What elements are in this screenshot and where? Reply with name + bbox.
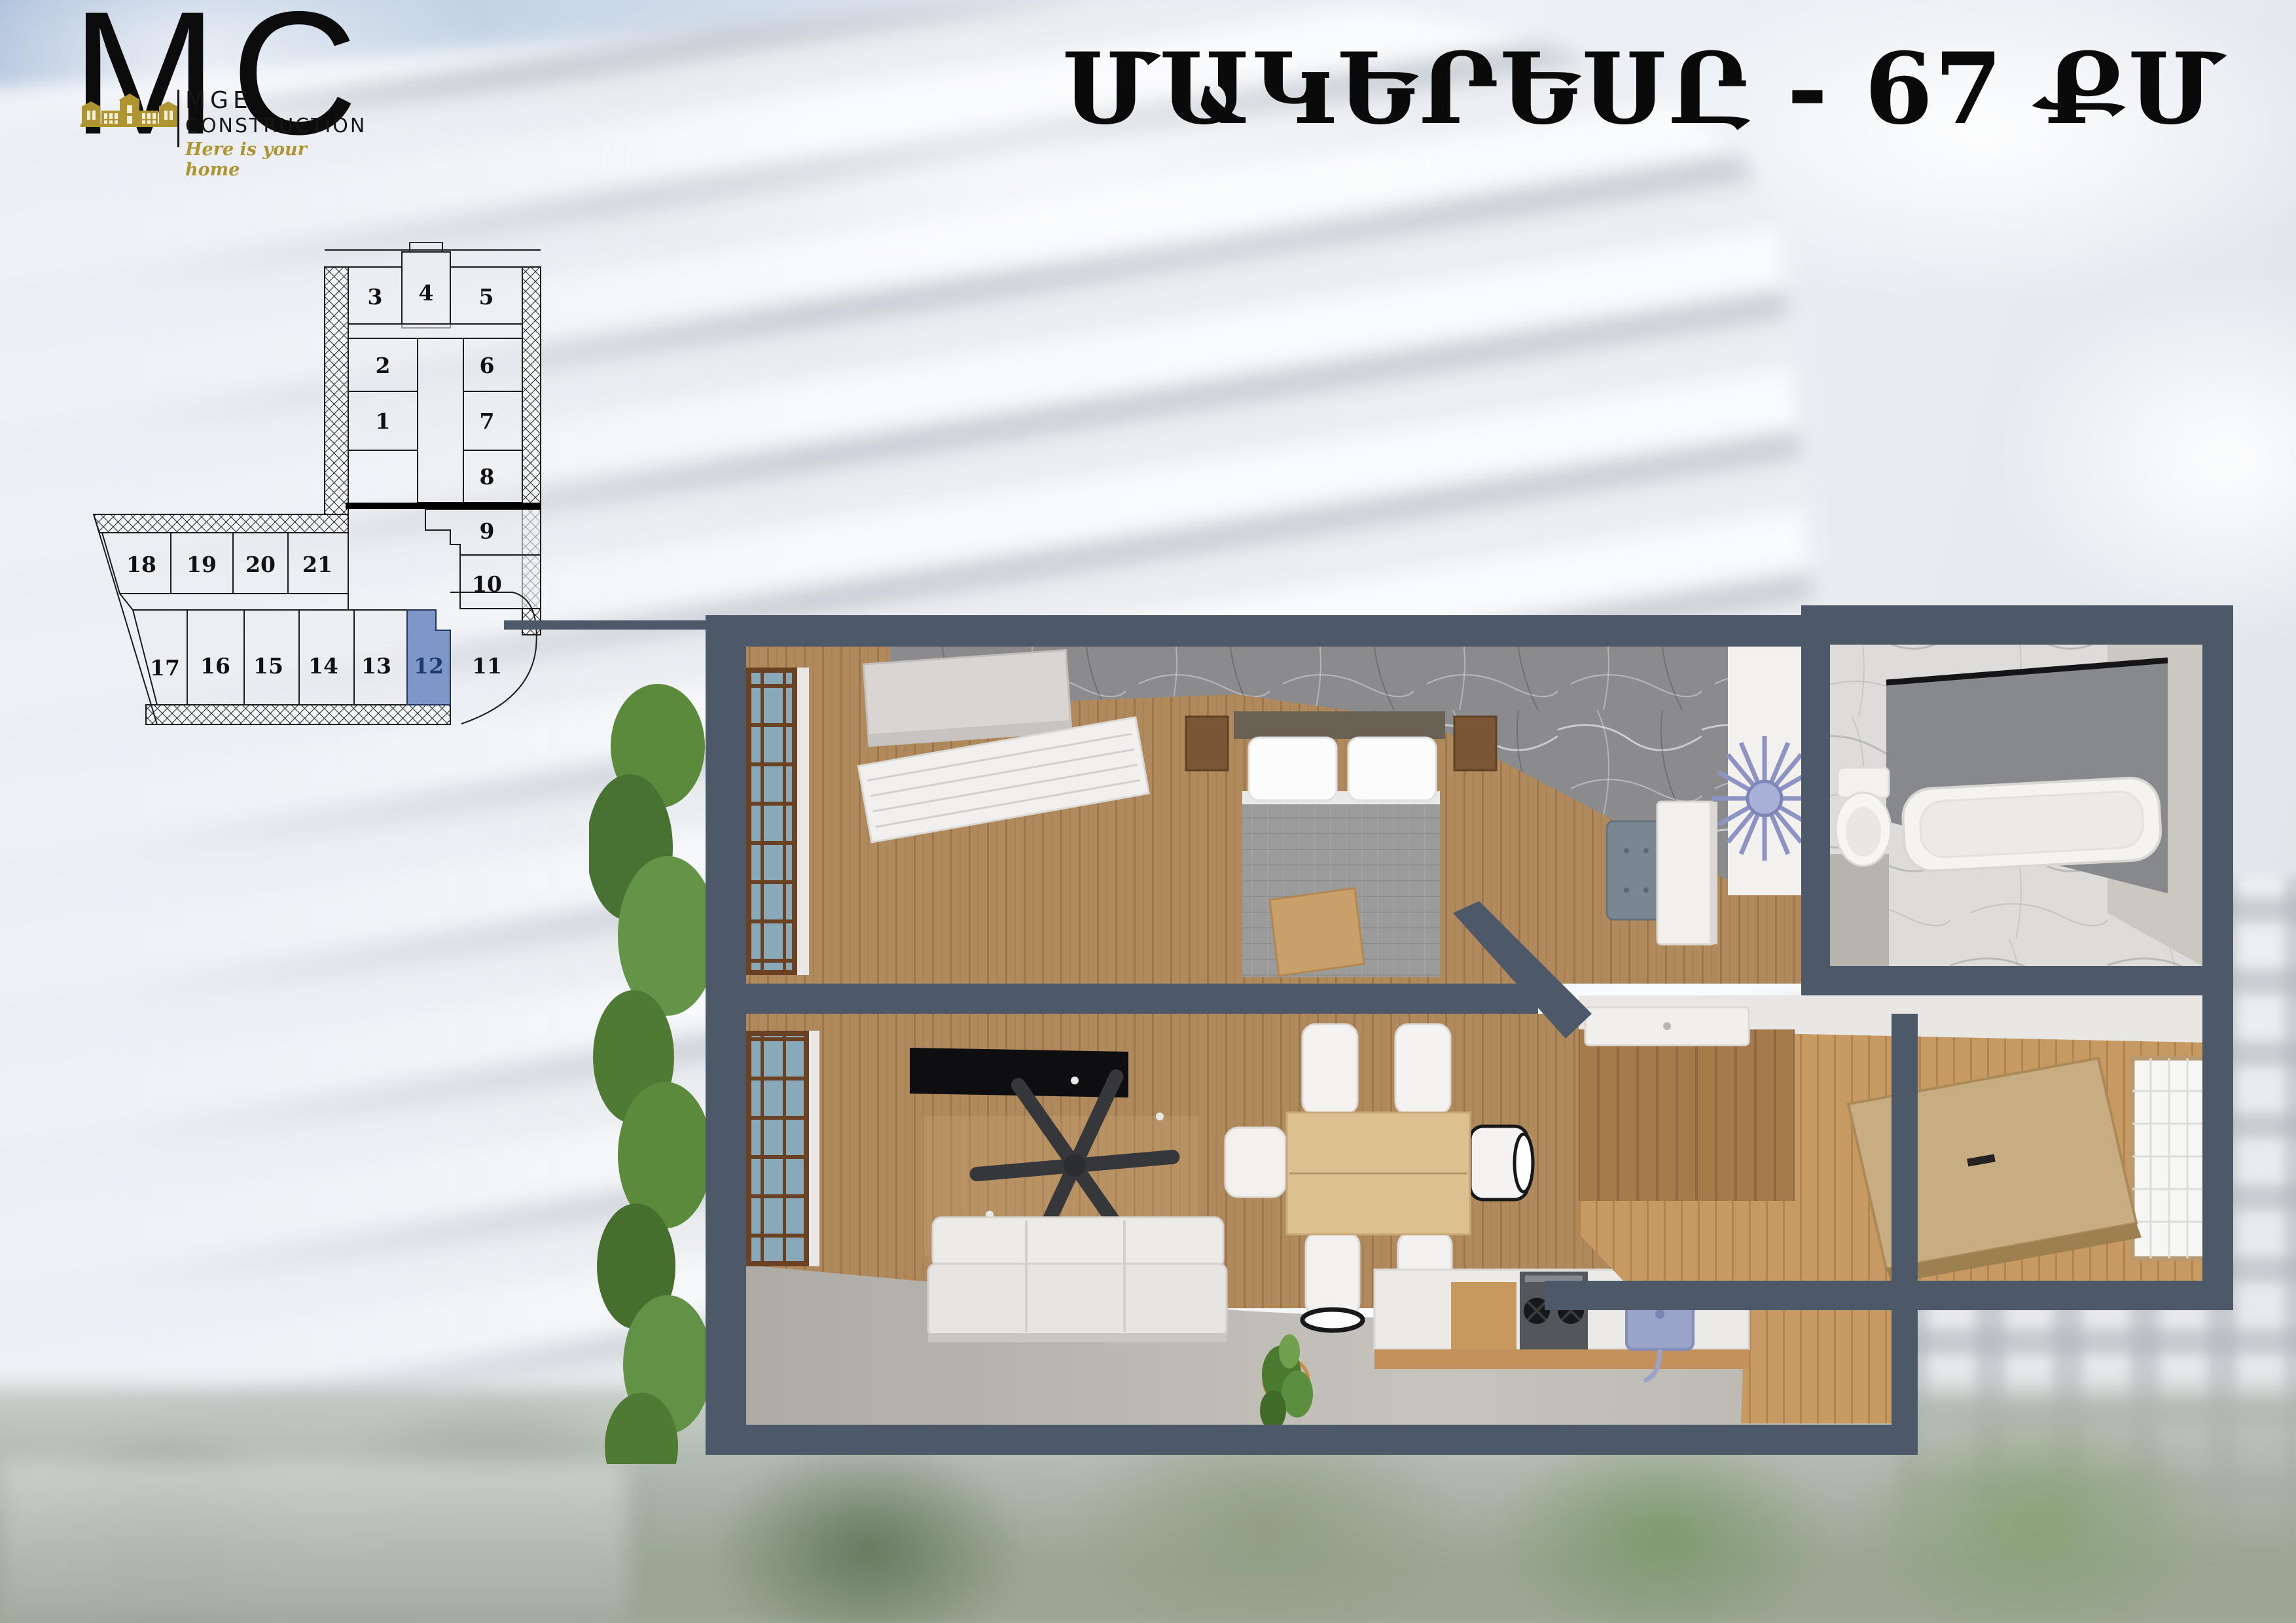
bedroom-window-glass: [751, 673, 792, 970]
svg-text:5: 5: [479, 284, 494, 310]
dining-chair: [1302, 1024, 1357, 1115]
wall-left: [706, 615, 746, 1455]
svg-text:4: 4: [419, 280, 434, 306]
nightstand: [1454, 717, 1496, 770]
dining-chair: [1302, 1232, 1363, 1330]
plan-exterior-trees: [589, 684, 717, 1464]
frosted-glass-door: [2132, 1058, 2206, 1258]
schematic-wall-hatched: [94, 514, 348, 533]
schematic-corridor: [418, 338, 463, 503]
svg-text:3: 3: [368, 284, 383, 310]
vanity-dresser: [1657, 802, 1715, 944]
wall-top: [706, 615, 1801, 647]
window-sill: [797, 668, 809, 975]
wall-living-right: [1892, 1014, 1918, 1425]
svg-text:8: 8: [480, 464, 495, 490]
svg-text:18: 18: [126, 552, 156, 577]
svg-text:13: 13: [361, 653, 391, 679]
schematic-slab-line: [346, 503, 541, 509]
bathroom-wall-bottom: [1801, 966, 2233, 995]
logo-company-name-line1: MGE: [185, 87, 253, 114]
brochure-page: M C: [0, 0, 2296, 1623]
toilet: [1836, 768, 1891, 866]
svg-text:9: 9: [480, 518, 495, 544]
living-window-glass: [751, 1036, 804, 1261]
dining-chair: [1395, 1024, 1450, 1115]
company-logo: M C: [62, 10, 403, 193]
bathroom-wall-right: [2202, 605, 2233, 995]
dining-chair: [1470, 1126, 1533, 1200]
bathroom-tile-area: [1830, 854, 1889, 966]
bathtub: [1901, 777, 2162, 872]
wardrobe: [863, 650, 1071, 745]
svg-text:1: 1: [376, 408, 391, 434]
wall-bottom: [706, 1425, 1918, 1455]
schematic-wall-hatched: [146, 705, 450, 724]
svg-text:12: 12: [414, 653, 444, 679]
svg-text:15: 15: [253, 653, 283, 679]
vanity-stool: [1607, 821, 1664, 919]
svg-text:14: 14: [308, 653, 338, 679]
bathroom-wall-top: [1801, 605, 2233, 645]
logo-tagline: Here is your home: [185, 139, 361, 180]
logo-divider-bar: [177, 90, 179, 147]
background-street: [0, 1459, 628, 1623]
page-title: ՄԱԿԵՐԵՍԸ - 67 ՔՄ: [1062, 31, 2225, 147]
wall-middle: [746, 984, 1538, 1014]
hall-wall-right: [2202, 995, 2233, 1310]
hall-wall-bottom: [1545, 1281, 2233, 1310]
svg-text:7: 7: [480, 408, 495, 434]
bed-pillow: [1249, 738, 1336, 800]
logo-company-name-line2: CONSTRUCTION: [185, 115, 367, 137]
apartment-3d-floor-plan: [589, 605, 2296, 1464]
svg-text:6: 6: [480, 353, 495, 378]
svg-text:16: 16: [200, 653, 230, 679]
building-floor-schematic: 1 2 3 4 5 6 7 8 9 10 11 12 13 14 15 16 1…: [84, 242, 607, 740]
svg-text:19: 19: [187, 552, 217, 577]
schematic-corridor: [348, 324, 522, 338]
classical-building-icon: [81, 94, 179, 128]
sofa: [928, 1217, 1227, 1342]
svg-text:17: 17: [150, 655, 180, 681]
svg-text:11: 11: [472, 653, 502, 679]
dining-chair: [1225, 1128, 1285, 1197]
svg-text:21: 21: [302, 552, 332, 577]
bed-pillow: [1348, 738, 1436, 800]
svg-text:10: 10: [472, 571, 502, 597]
bathroom-wall-left: [1801, 605, 1830, 995]
bedroom-door-leaf: [1270, 888, 1364, 976]
svg-text:2: 2: [376, 353, 391, 378]
kitchen-wood-panel: [1451, 1282, 1516, 1349]
bathroom: [1830, 645, 2202, 966]
bed-headboard: [1234, 711, 1445, 739]
bedroom: [746, 647, 1817, 984]
svg-text:20: 20: [245, 552, 276, 577]
schematic-wall-hatched: [325, 267, 348, 514]
hall-wood-paneling: [1579, 1029, 1795, 1201]
nightstand: [1186, 717, 1228, 770]
